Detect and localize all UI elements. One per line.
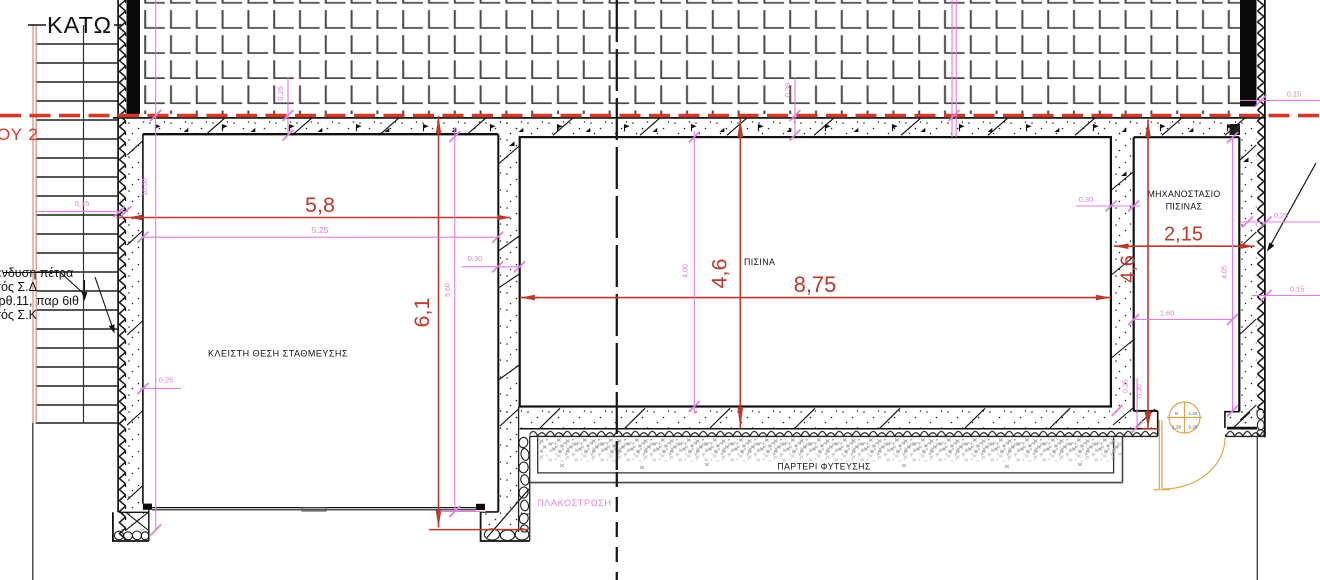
svg-text:τός Σ.Κ: τός Σ.Κ [0, 308, 38, 322]
svg-text:Θ: Θ [1175, 411, 1179, 416]
svg-text:4,6: 4,6 [708, 259, 732, 289]
svg-text:ΠΛΑΚΟΣΤΡΩΣΗ: ΠΛΑΚΟΣΤΡΩΣΗ [537, 498, 612, 508]
svg-text:0,25: 0,25 [1274, 211, 1289, 220]
svg-text:ΠΙΣΙΝΑΣ: ΠΙΣΙΝΑΣ [1166, 202, 1203, 212]
svg-text:4,05: 4,05 [1222, 265, 1229, 279]
svg-text:0,30: 0,30 [1137, 384, 1144, 398]
svg-text:ΠΙΣΙΝΑ: ΠΙΣΙΝΑ [744, 257, 775, 267]
svg-text:1,20: 1,20 [1189, 411, 1198, 416]
svg-text:0,30: 0,30 [468, 254, 483, 263]
svg-text:0,25: 0,25 [159, 376, 174, 385]
svg-text:ρθ.11, παρ 6ιθ: ρθ.11, παρ 6ιθ [0, 294, 79, 308]
svg-text:0,30: 0,30 [1079, 195, 1094, 204]
svg-text:ΜΗΧΑΝΟΣΤΑΣΙΟ: ΜΗΧΑΝΟΣΤΑΣΙΟ [1148, 189, 1221, 199]
svg-text:4,6: 4,6 [1118, 255, 1140, 283]
svg-text:2,28: 2,28 [1172, 425, 1181, 430]
svg-text:0,28: 0,28 [1189, 425, 1198, 430]
svg-text:ΚΑΤΩ: ΚΑΤΩ [47, 12, 112, 38]
svg-text:5,25: 5,25 [312, 225, 329, 235]
svg-text:ΚΛΕΙΣΤΗ ΘΕΣΗ ΣΤΑΘΜΕΥΣΗΣ: ΚΛΕΙΣΤΗ ΘΕΣΗ ΣΤΑΘΜΕΥΣΗΣ [208, 349, 348, 359]
svg-text:0,25: 0,25 [1123, 379, 1130, 393]
svg-text:ΟΥ 2: ΟΥ 2 [0, 125, 39, 144]
svg-text:5,60: 5,60 [445, 283, 452, 297]
svg-text:0,15: 0,15 [75, 199, 90, 208]
svg-text:4,00: 4,00 [683, 264, 690, 278]
svg-text:0,15: 0,15 [1290, 285, 1305, 294]
svg-text:τός Σ.Δ: τός Σ.Δ [0, 280, 37, 294]
svg-text:0,30: 0,30 [783, 83, 792, 98]
svg-text:10,00: 10,00 [142, 178, 149, 196]
svg-text:6,1: 6,1 [410, 298, 434, 328]
svg-text:0,25: 0,25 [276, 86, 285, 101]
svg-text:1,60: 1,60 [1160, 309, 1175, 318]
svg-text:0,15: 0,15 [1287, 90, 1302, 99]
svg-text:ΠΑΡΤΕΡΙ ΦΥΤΕΥΣΗΣ: ΠΑΡΤΕΡΙ ΦΥΤΕΥΣΗΣ [777, 462, 871, 472]
svg-text:8,75: 8,75 [794, 272, 837, 297]
svg-text:2,15: 2,15 [1164, 224, 1203, 246]
svg-text:5,8: 5,8 [305, 193, 335, 217]
